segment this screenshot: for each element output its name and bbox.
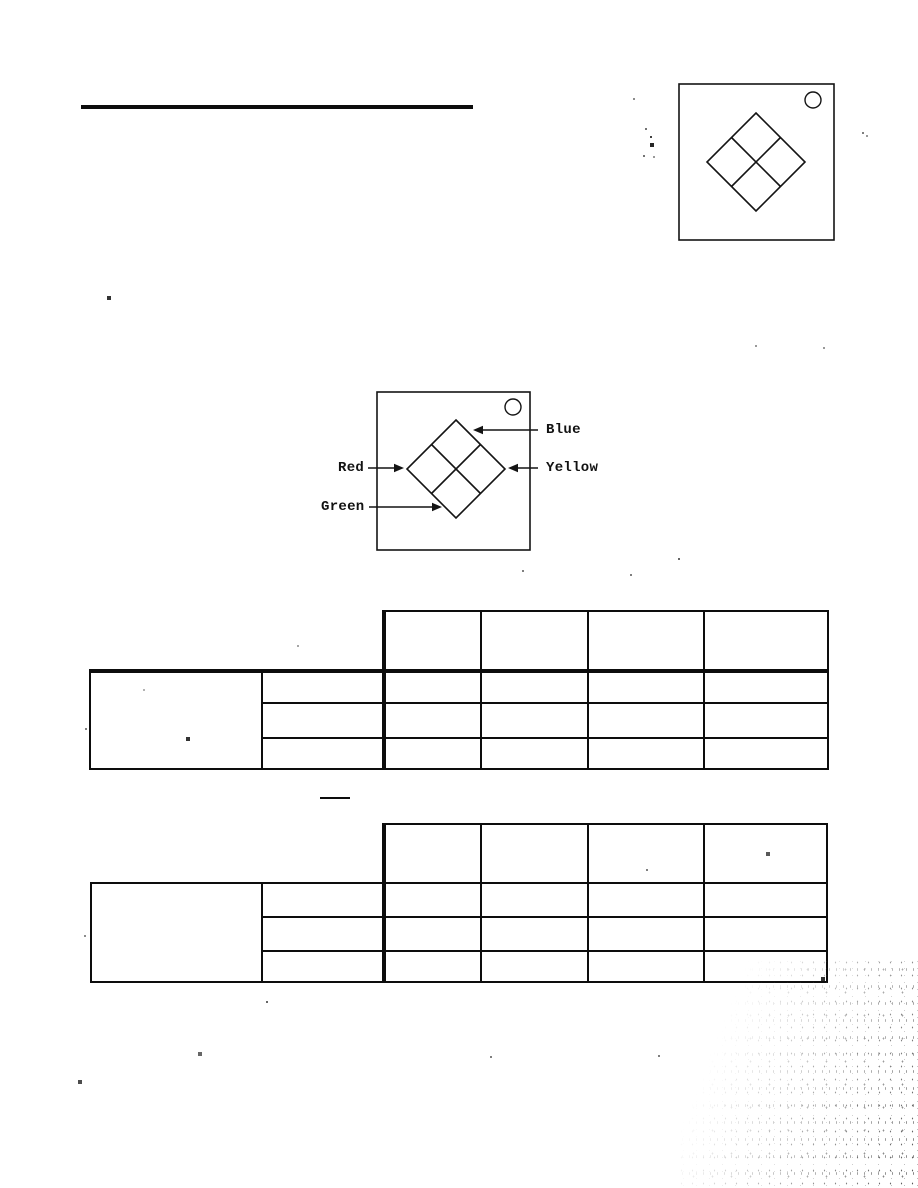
label-red: Red (338, 461, 364, 476)
table-border-line (89, 669, 91, 770)
placard-figure-labeled: Blue Yellow Red Green (300, 380, 640, 570)
blank-table-1 (89, 610, 829, 770)
table-border-line (382, 823, 386, 983)
table-border-line (827, 610, 829, 770)
blue-arrowhead-icon (473, 426, 483, 434)
grommet-hole-icon (805, 92, 821, 108)
placard-outline (678, 83, 835, 241)
scan-noise-region (676, 956, 918, 1188)
table-border-line (261, 916, 828, 918)
table-border-line (382, 610, 829, 612)
table-border-line (587, 610, 589, 770)
table-border-line (261, 702, 829, 704)
label-blue: Blue (546, 423, 581, 438)
blank-underline (320, 797, 350, 799)
table-border-line (89, 669, 829, 673)
table-border-line (90, 882, 828, 884)
table-border-line (480, 823, 482, 983)
green-arrowhead-icon (432, 503, 442, 511)
label-yellow: Yellow (546, 461, 598, 476)
table-border-line (382, 610, 386, 770)
placard-figure-top (678, 83, 835, 241)
title-rule (81, 105, 473, 109)
scanned-document-page: Blue Yellow Red Green (0, 0, 918, 1188)
table-border-line (480, 610, 482, 770)
table-border-line (382, 823, 828, 825)
table-border-line (587, 823, 589, 983)
table-border-line (261, 950, 828, 952)
table-border-line (261, 882, 263, 983)
table-border-line (89, 768, 829, 770)
yellow-arrowhead-icon (508, 464, 518, 472)
table-border-line (261, 737, 829, 739)
scan-specks (0, 0, 2, 2)
label-green: Green (321, 500, 365, 515)
table-border-line (90, 882, 92, 983)
table-border-line (261, 669, 263, 770)
red-arrowhead-icon (394, 464, 404, 472)
table-border-line (703, 610, 705, 770)
